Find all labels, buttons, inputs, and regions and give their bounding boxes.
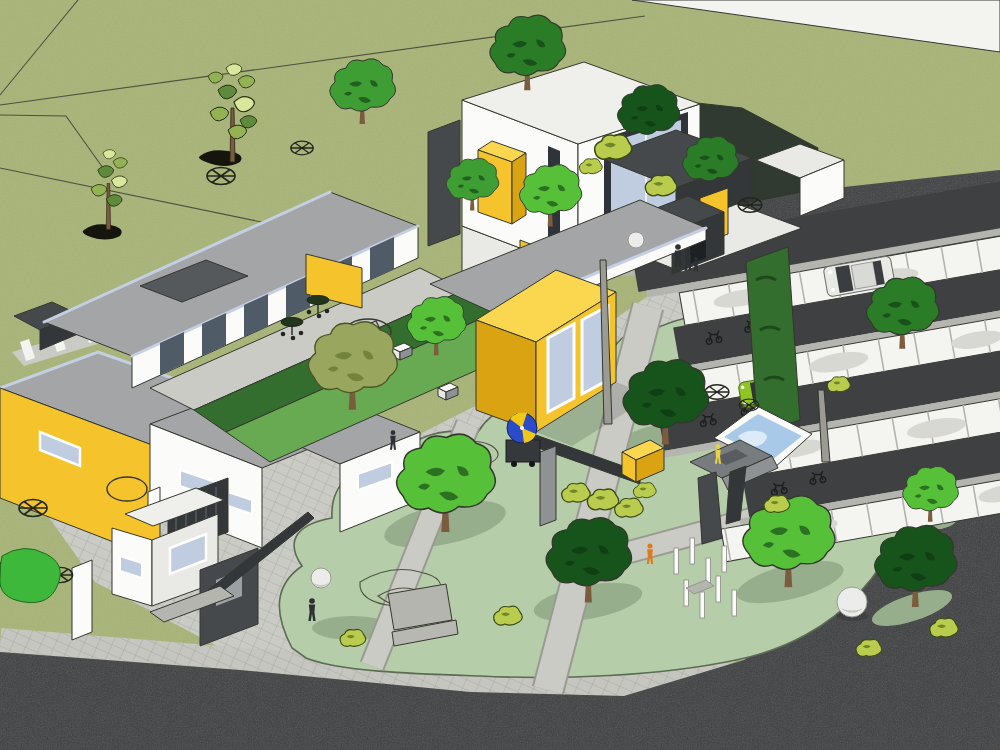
site-render-canvas — [0, 0, 1000, 750]
sphere-lamp — [311, 568, 331, 588]
rendered-scene — [0, 0, 1000, 750]
cart-umbrella — [507, 412, 537, 443]
vendor-cart — [506, 412, 540, 467]
bright-shrub-corner — [0, 548, 60, 602]
sphere-sculpture — [836, 587, 868, 621]
sphere-lamp-gate — [628, 232, 644, 248]
